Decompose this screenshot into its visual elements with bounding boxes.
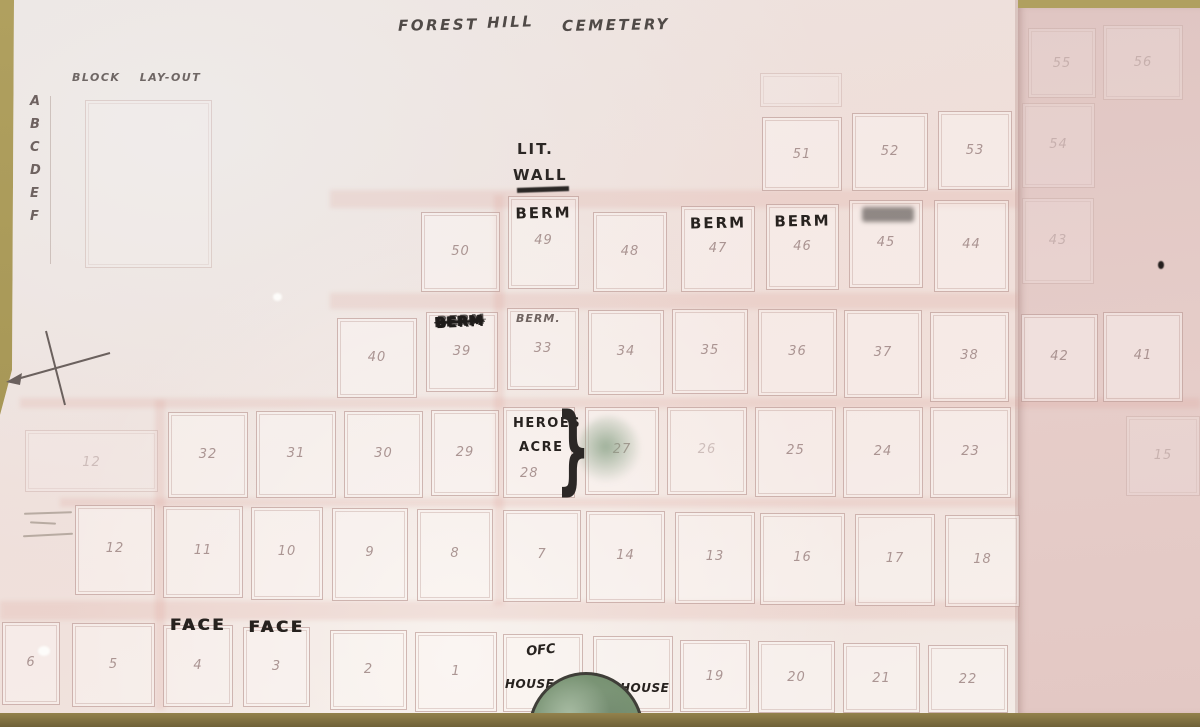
block-33: BERM.33 [507,308,579,390]
block-44: 44 [934,200,1009,292]
row-letter-D: D [30,163,41,186]
block-43: 43 [1022,198,1094,284]
block-number: 11 [164,543,242,558]
block-17: 17 [855,514,935,606]
block-number: 9 [333,545,407,560]
block-number: 31 [257,446,335,461]
row-letter-A: A [30,94,41,117]
block-number: 2 [331,662,406,677]
block-22: 22 [928,645,1008,713]
block-unlabeled-a [85,100,212,268]
block-6: 6 [2,622,60,705]
block-number: 38 [931,348,1008,363]
block-39: BERM39 [426,312,498,392]
block-number: 50 [422,244,499,259]
berm-pencil-label: BERM. [516,312,561,325]
face-label: FACE [164,615,232,634]
cemetery-map-photo: FOREST HILL CEMETERY BLOCK LAY-OUT ABCDE… [0,0,1200,727]
block-50: 50 [421,212,500,292]
block-number: 24 [844,444,922,459]
block-number: 13 [676,549,754,564]
block-7: 7 [503,510,581,602]
block-number: 22 [929,672,1007,687]
block-11: 11 [163,506,243,598]
block-number: 16 [761,550,844,565]
block-31: 31 [256,411,336,498]
map-title-word-2: HILL [487,12,535,32]
block-49: BERM49 [508,196,579,289]
block-3: FACE3 [243,627,310,707]
row-letter-index: ABCDEF [30,94,41,232]
block-18: 18 [945,515,1020,607]
block-51: 51 [762,117,842,191]
block-number: 6 [3,655,59,670]
block-number: 19 [681,669,749,684]
block-10: 10 [251,507,323,600]
berm-label: BERM [767,211,838,230]
block-number: 47 [682,241,754,256]
block-number: 56 [1104,55,1182,70]
block-number: 55 [1029,56,1095,71]
block-number: 35 [673,343,747,358]
block-41: 41 [1103,312,1183,402]
cross-mark [0,325,130,420]
block-number: 10 [252,544,322,559]
block-45: 45 [849,200,923,288]
block-number: 5 [73,657,154,672]
paper-speck [38,646,50,656]
row-letter-B: B [30,117,41,140]
block-30: 30 [344,411,423,498]
block-55: 55 [1028,28,1096,98]
block-36: 36 [758,309,837,396]
block-14: 14 [586,511,665,603]
block-15: 15 [1126,416,1200,496]
block-27: 27 [585,407,659,495]
berm-scribbled-label: BERM [435,313,485,332]
block-number: 14 [587,548,664,563]
block-number: 26 [668,442,746,457]
block-layout-label: BLOCK LAY-OUT [72,71,201,84]
block-number: 23 [931,444,1010,459]
block-number: 34 [589,344,663,359]
block-5: 5 [72,623,155,707]
block-number: 43 [1023,233,1093,248]
photo-bottom-edge [0,713,1200,727]
block-number: 37 [845,345,921,360]
block-number: 18 [946,552,1019,567]
block-number: 4 [164,658,232,673]
block-16: 16 [760,513,845,605]
ink-dot [1158,261,1164,269]
block-47: BERM47 [681,206,755,292]
block-number: 33 [508,341,578,356]
berm-label: BERM [509,203,578,222]
block-number: 51 [763,147,841,162]
blocks-layer: 51525355565450BERM4948BERM47BERM46454443… [0,0,1200,727]
block-number: 32 [169,447,247,462]
block-38: 38 [930,312,1009,402]
block-46: BERM46 [766,204,839,290]
block-number: 12 [26,455,157,470]
block-number: 49 [509,233,578,248]
block-unlabeled-b [760,73,842,107]
block-number: 39 [427,344,497,359]
block-26: 26 [667,407,747,495]
block-number: 42 [1022,349,1097,364]
block-4: FACE4 [163,625,233,707]
block-number: 20 [759,670,834,685]
lit-label: LIT. [517,140,554,158]
block-52: 52 [852,113,928,191]
block-35: 35 [672,309,748,394]
block-56: 56 [1103,25,1183,100]
row-letter-C: C [30,140,41,163]
block-42: 42 [1021,314,1098,402]
map-title-word-3: CEMETERY [562,15,670,35]
block-23: 23 [930,407,1011,498]
row-letter-F: F [30,209,41,232]
block-number: 45 [850,235,922,250]
face-label: FACE [244,617,309,636]
ofc-label: OFC [503,639,578,662]
block-25: 25 [755,407,836,497]
block-13: 13 [675,512,755,604]
block-number: 17 [856,551,934,566]
block-29: 29 [431,410,499,496]
block-number: 40 [338,350,416,365]
ink-smudge [862,207,914,222]
block-number: 28 [520,466,539,481]
block-number: 8 [418,546,492,561]
block-number: 30 [345,446,422,461]
block-21: 21 [843,643,920,713]
block-number: 7 [504,547,580,562]
block-number: 3 [244,659,309,674]
block-54: 54 [1022,103,1095,188]
map-title-word-1: FOREST [398,15,479,34]
block-2: 2 [330,630,407,710]
heroes-acre-brace: } [556,400,590,498]
block-12a: 12 [25,430,158,492]
wall-label: WALL [513,166,568,184]
block-19: 19 [680,640,750,712]
block-number: 53 [939,143,1011,158]
block-number: 46 [767,239,838,254]
block-24: 24 [843,407,923,498]
block-34: 34 [588,310,664,395]
block-1: 1 [415,632,497,712]
block-number: 12 [76,541,154,556]
block-number: 48 [594,244,666,259]
block-number: 52 [853,144,927,159]
block-number: 44 [935,237,1008,252]
block-number: 1 [416,664,496,679]
block-number: 29 [432,445,498,460]
block-12: 12 [75,505,155,595]
block-20: 20 [758,641,835,713]
block-53: 53 [938,111,1012,190]
block-number: 54 [1023,137,1094,152]
paper-speck [273,293,282,301]
block-number: 21 [844,671,919,686]
berm-label: BERM [682,213,754,232]
block-number: 41 [1104,348,1182,363]
block-9: 9 [332,508,408,601]
block-number: 25 [756,443,835,458]
block-number: 36 [759,344,836,359]
block-37: 37 [844,310,922,398]
block-32: 32 [168,412,248,498]
row-letter-E: E [30,186,41,209]
block-48: 48 [593,212,667,292]
block-40: 40 [337,318,417,398]
block-8: 8 [417,509,493,601]
block-number: 15 [1127,448,1199,463]
